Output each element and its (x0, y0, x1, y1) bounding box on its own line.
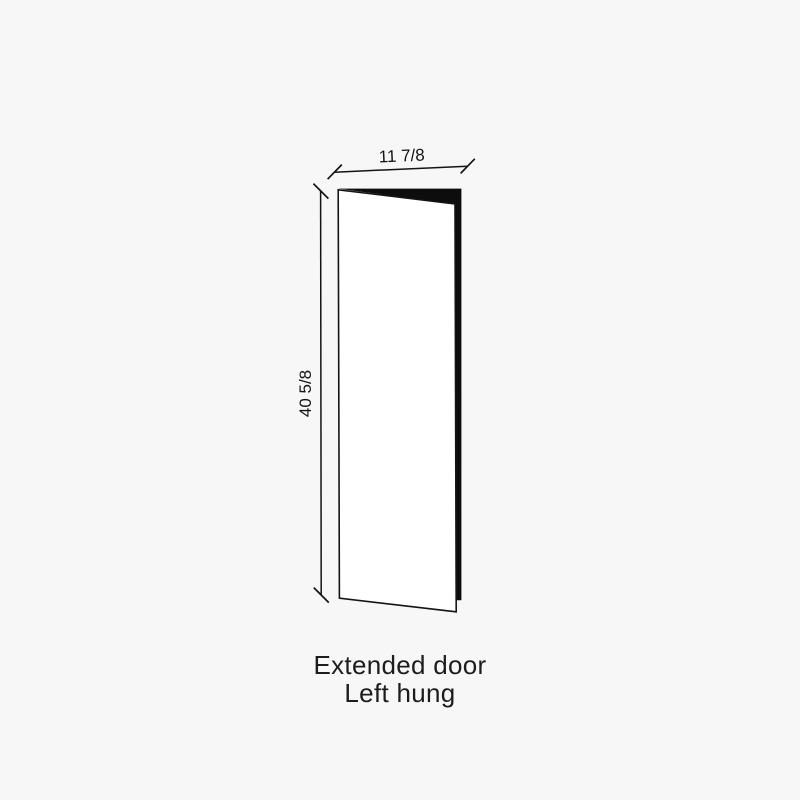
caption-line-2: Left hung (0, 679, 800, 707)
width-dimension: 11 7/8 (328, 145, 475, 179)
door-front-panel (338, 190, 456, 612)
caption-line-1: Extended door (0, 651, 800, 679)
width-dimension-line (335, 166, 468, 172)
width-dimension-label: 11 7/8 (378, 145, 425, 166)
drawing-canvas: 11 7/8 40 5/8 Extended door Left hung (0, 0, 800, 800)
height-dimension: 40 5/8 (296, 184, 329, 603)
height-dimension-label: 40 5/8 (296, 370, 315, 417)
caption: Extended door Left hung (0, 651, 800, 707)
height-dimension-line (321, 191, 322, 595)
door-shape (338, 189, 461, 612)
